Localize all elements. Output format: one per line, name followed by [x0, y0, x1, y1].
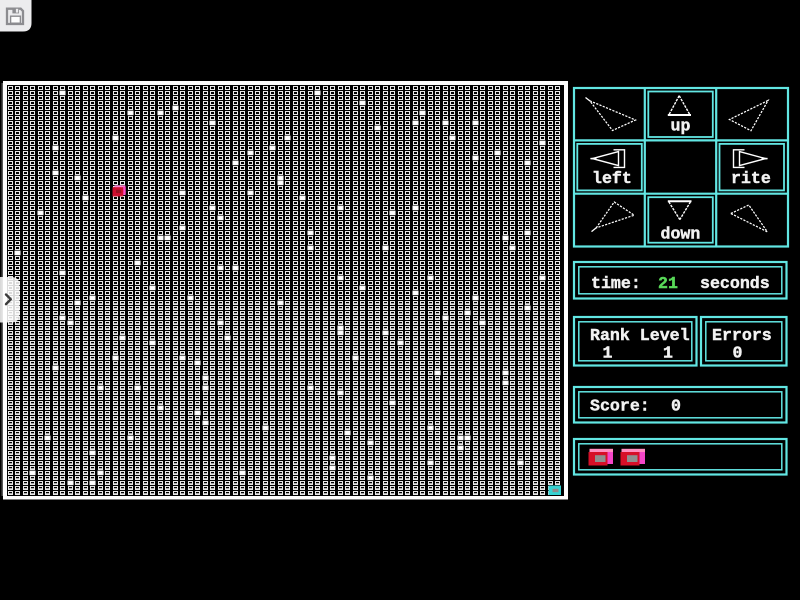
- svg-text:rite: rite: [731, 169, 771, 188]
- svg-text:up: up: [671, 117, 691, 136]
- svg-text:0: 0: [671, 397, 681, 416]
- svg-text:0: 0: [733, 344, 743, 363]
- svg-text:time:: time:: [591, 274, 641, 293]
- svg-text:1: 1: [603, 344, 613, 363]
- svg-text:Rank Level: Rank Level: [590, 326, 690, 345]
- svg-text:21: 21: [658, 274, 678, 293]
- svg-text:seconds: seconds: [700, 274, 770, 293]
- svg-text:Score:: Score:: [590, 397, 650, 416]
- svg-text:left: left: [592, 169, 632, 188]
- svg-text:Errors: Errors: [712, 326, 772, 345]
- svg-text:1: 1: [663, 344, 673, 363]
- svg-text:down: down: [661, 225, 701, 244]
